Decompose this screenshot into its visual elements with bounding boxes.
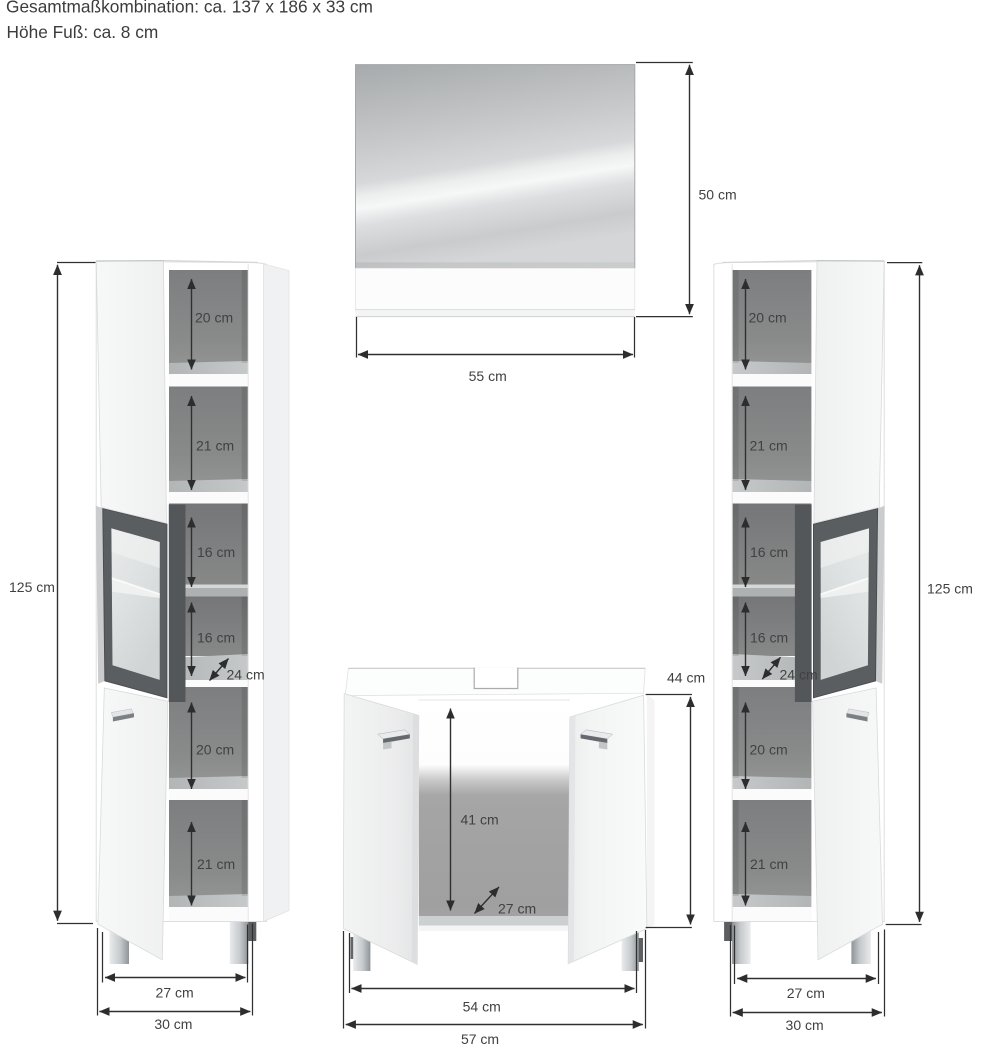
- svg-text:125 cm: 125 cm: [9, 579, 55, 595]
- svg-text:20 cm: 20 cm: [749, 310, 787, 326]
- svg-text:16 cm: 16 cm: [750, 630, 788, 646]
- svg-text:21 cm: 21 cm: [750, 856, 788, 872]
- svg-text:20 cm: 20 cm: [195, 310, 233, 326]
- svg-text:24 cm: 24 cm: [227, 667, 265, 683]
- svg-text:16 cm: 16 cm: [750, 544, 788, 560]
- svg-text:Höhe Fuß: ca. 8 cm: Höhe Fuß: ca. 8 cm: [7, 22, 159, 42]
- svg-text:44 cm: 44 cm: [667, 670, 705, 686]
- svg-text:30 cm: 30 cm: [154, 1016, 192, 1032]
- svg-text:21 cm: 21 cm: [750, 438, 788, 454]
- svg-text:16 cm: 16 cm: [197, 630, 235, 646]
- svg-text:55 cm: 55 cm: [469, 368, 507, 384]
- svg-text:41 cm: 41 cm: [461, 812, 499, 828]
- svg-text:125 cm: 125 cm: [927, 581, 973, 597]
- svg-text:21 cm: 21 cm: [197, 856, 235, 872]
- svg-text:Gesamtmaßkombination: ca. 137: Gesamtmaßkombination: ca. 137 x 186 x 33…: [6, 0, 373, 17]
- svg-text:54 cm: 54 cm: [463, 999, 501, 1015]
- svg-text:30 cm: 30 cm: [786, 1017, 824, 1033]
- svg-text:27 cm: 27 cm: [787, 985, 825, 1001]
- svg-text:21 cm: 21 cm: [196, 438, 234, 454]
- svg-text:20 cm: 20 cm: [750, 742, 788, 758]
- svg-text:27 cm: 27 cm: [156, 985, 194, 1001]
- svg-text:57 cm: 57 cm: [461, 1031, 499, 1047]
- svg-text:27 cm: 27 cm: [498, 901, 536, 917]
- svg-text:50 cm: 50 cm: [699, 187, 737, 203]
- svg-text:24 cm: 24 cm: [780, 667, 818, 683]
- svg-text:20 cm: 20 cm: [196, 742, 234, 758]
- svg-text:16 cm: 16 cm: [197, 544, 235, 560]
